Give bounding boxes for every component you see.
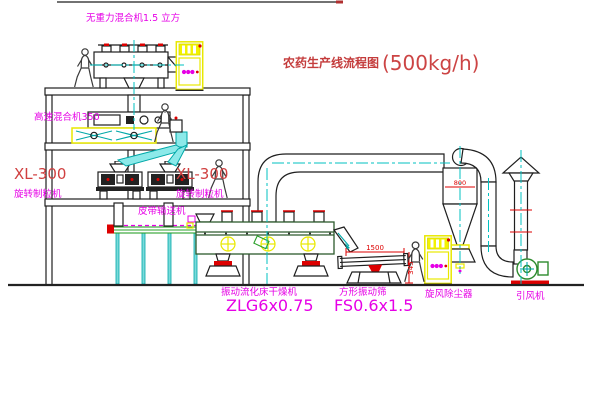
label-granulator-right-model: XL-300 xyxy=(176,165,228,183)
label-granulator-left-model: XL-300 xyxy=(14,165,66,183)
control-cabinet-cyclone xyxy=(424,236,452,284)
label-belt-conveyor: 皮带输送机 xyxy=(138,205,186,217)
label-fan: 引风机 xyxy=(516,290,545,302)
page-title: 农药生产线流程图 xyxy=(282,55,379,70)
page-title-capacity: (500kg/h) xyxy=(382,51,479,75)
label-screen-model: FS0.6x1.5 xyxy=(334,296,413,315)
label-granulator-right-name: 旋转制粒机 xyxy=(176,188,224,200)
drawing-frame-edge xyxy=(57,1,343,4)
label-zero-gravity-mixer: 无重力混合机1.5 立方 xyxy=(86,12,180,24)
flow-diagram-canvas: 农药生产线流程图 (500kg/h) 无重力混合机1.5 立方 高速混合机350… xyxy=(0,0,600,403)
label-high-speed-mixer: 高速混合机350 xyxy=(34,111,100,123)
label-granulator-left-name: 旋转制粒机 xyxy=(14,188,62,200)
induced-draft-fan xyxy=(511,250,549,285)
dim-cyclone-body: 800 xyxy=(454,179,466,187)
fluid-bed-dryer xyxy=(187,211,334,276)
dim-screen-width: 1500 xyxy=(366,244,384,252)
control-cabinet-top xyxy=(176,42,204,91)
belt-conveyor xyxy=(107,225,209,285)
rotary-granulator-left xyxy=(96,161,144,199)
label-dryer-model: ZLG6x0.75 xyxy=(226,296,314,315)
dim-screen-height: 345 xyxy=(407,261,415,274)
label-cyclone: 旋风除尘器 xyxy=(425,288,473,300)
zero-gravity-mixer xyxy=(94,44,181,89)
process-flow-diagram: 农药生产线流程图 (500kg/h) 无重力混合机1.5 立方 高速混合机350… xyxy=(0,0,600,403)
worker-figure-top xyxy=(75,49,94,87)
vibrating-screen xyxy=(334,227,413,283)
